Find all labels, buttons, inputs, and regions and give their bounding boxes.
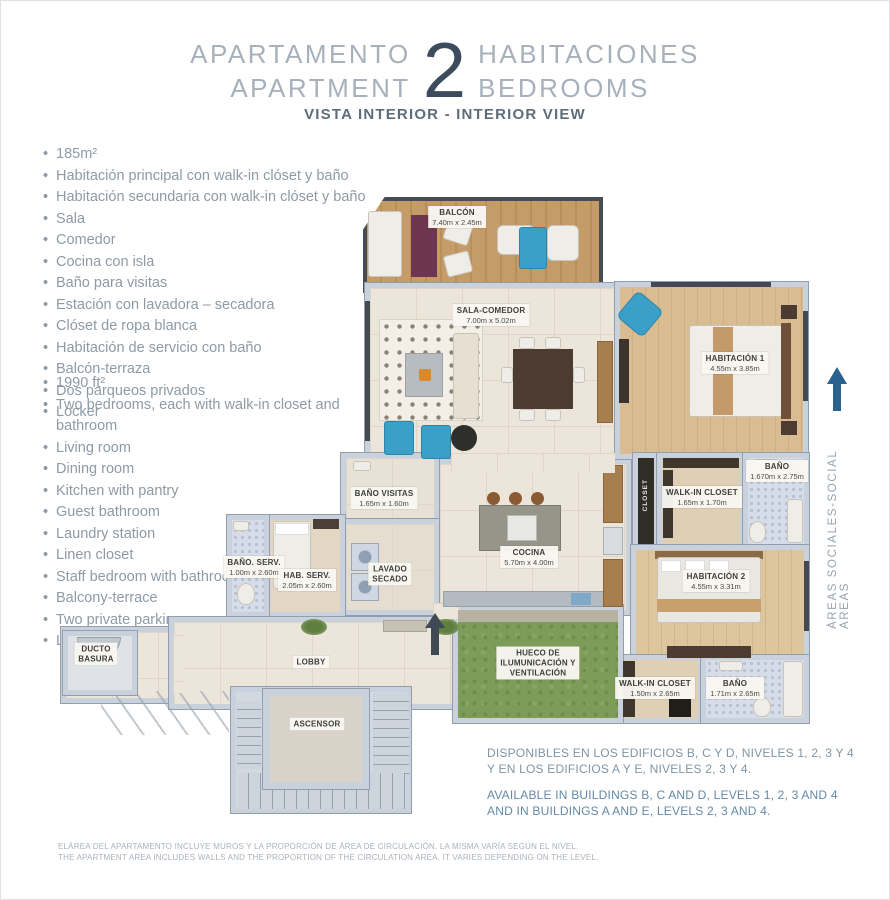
label-lobby: LOBBY: [293, 656, 330, 669]
bedroom2-pillow: [661, 560, 681, 572]
title-es-left: APARTAMENTO: [190, 37, 411, 71]
label-guest-bathroom: BAÑO VISITAS1.65m x 1.60m: [351, 487, 418, 509]
feature-item: Habitación de servicio con baño: [43, 338, 375, 360]
lobby-console: [383, 620, 427, 632]
stairs-right: [373, 693, 409, 779]
nightstand: [781, 305, 797, 319]
balcony-sofa: [368, 211, 402, 277]
label-walkin-closet-2: WALK-IN CLOSET1.50m x 2.65m: [615, 677, 695, 699]
bath2-tub: [783, 661, 803, 717]
availability-text-es: DISPONIBLES EN LOS EDIFICIOS B, C Y D, N…: [487, 745, 879, 777]
staff-bath-toilet: [237, 583, 255, 605]
dining-chair: [519, 337, 535, 349]
feature-item: Baño para visitas: [43, 273, 375, 295]
bath1-toilet: [749, 521, 766, 543]
bar-stool: [487, 492, 500, 505]
title-right-column: HABITACIONES BEDROOMS: [478, 37, 700, 105]
kitchen-cabinet: [603, 559, 623, 607]
bar-stool: [509, 492, 522, 505]
label-living-dining: SALA-COMEDOR7.00m x 5.02m: [453, 304, 530, 326]
label-kitchen: COCINA5.70m x 4.00m: [500, 546, 558, 568]
console-table: [597, 341, 613, 423]
feature-item: Two bedrooms, each with walk-in closet a…: [43, 395, 375, 438]
kitchen-sink: [571, 593, 591, 605]
feature-item: Living room: [43, 438, 375, 460]
balcony-table: [519, 227, 547, 269]
view-subtitle: VISTA INTERIOR - INTERIOR VIEW: [1, 106, 889, 123]
dining-chair: [519, 409, 535, 421]
label-elevator: ASCENSOR: [290, 718, 345, 731]
dining-chair: [573, 367, 585, 383]
stairs-left: [237, 701, 261, 769]
bedroom2-dresser: [667, 646, 751, 658]
feature-item: Clóset de ropa blanca: [43, 316, 375, 338]
dining-chair: [545, 409, 561, 421]
feature-item: Habitación principal con walk-in clóset …: [43, 166, 375, 188]
guest-bath-sink: [353, 461, 371, 471]
title-en-left: APARTMENT: [190, 71, 411, 105]
feature-item: Cocina con isla: [43, 252, 375, 274]
feature-item: Kitchen with pantry: [43, 481, 375, 503]
feature-item: 1990 ft²: [43, 373, 375, 395]
label-bathroom-1: BAÑO1.670m x 2.75m: [746, 460, 808, 482]
label-light-well: HUECO DE ILUMUNICACIÓN Y VENTILACIÓN: [496, 647, 579, 680]
walkin2-locker: [669, 699, 691, 717]
bath2-sink: [719, 661, 743, 671]
lobby-passage-patch: [173, 635, 183, 693]
label-bedroom-2: HABITACIÓN 24.55m x 3.31m: [683, 570, 750, 592]
label-bedroom-1: HABITACIÓN 14.55m x 3.85m: [702, 352, 769, 374]
bath2-toilet: [753, 697, 771, 717]
label-staff-bathroom: BAÑO. SERV.1.00m x 2.60m: [223, 556, 284, 578]
living-armchair: [421, 425, 451, 459]
bedroom1-tv-console: [619, 339, 629, 403]
nightstand: [781, 421, 797, 435]
title-left-column: APARTAMENTO APARTMENT: [190, 37, 411, 105]
refrigerator: [603, 527, 623, 555]
coffee-table-decor: [419, 369, 431, 381]
bar-stool: [531, 492, 544, 505]
disclaimer-text: ELÁREA DEL APARTAMENTO INCLUYE MUROS Y L…: [58, 841, 599, 863]
bedroom2-bed-runner: [657, 599, 761, 612]
label-bathroom-2: BAÑO1.71m x 2.65m: [706, 677, 764, 699]
dining-table: [513, 349, 573, 409]
lobby-plant: [301, 619, 327, 635]
lobby-ramp-hatch: [101, 691, 229, 735]
label-trash-chute: DUCTOBASURA: [74, 643, 117, 666]
floorplan-page: APARTAMENTO APARTMENT 2 HABITACIONES BED…: [0, 0, 890, 900]
staff-closet: [313, 519, 339, 529]
feature-item: Sala: [43, 209, 375, 231]
living-sofa: [453, 333, 479, 419]
window-bedroom1-right: [803, 311, 808, 401]
lightwell-paver: [458, 610, 618, 622]
label-linen-closet: CLOSET: [642, 479, 649, 511]
kitchen-counter: [443, 591, 623, 607]
page-title: APARTAMENTO APARTMENT 2 HABITACIONES BED…: [1, 37, 889, 105]
dining-chair: [545, 337, 561, 349]
title-es-right: HABITACIONES: [478, 37, 700, 71]
bedroom-count: 2: [421, 39, 468, 103]
open-passage-patch: [451, 453, 615, 473]
social-areas-note: ÁREAS SOCIALES-SOCIAL AREAS: [827, 419, 851, 629]
staff-bed-pillow: [275, 523, 309, 535]
living-armchair: [384, 421, 414, 455]
kitchen-stove: [507, 515, 537, 541]
bedroom1-headboard: [781, 323, 791, 419]
label-laundry: LAVADOSECADO: [368, 563, 411, 586]
staff-bath-sink: [233, 521, 249, 531]
feature-item: Comedor: [43, 230, 375, 252]
window-bedroom2-right: [804, 561, 809, 631]
window-living: [365, 301, 370, 441]
label-balcony: BALCÓN7.40m x 2.45m: [428, 206, 486, 228]
window-bedroom1-top: [651, 282, 771, 287]
dining-chair: [501, 367, 513, 383]
bath1-shower: [787, 499, 803, 543]
round-rug: [451, 425, 477, 451]
feature-item: 185m²: [43, 144, 375, 166]
label-walkin-closet-1: WALK-IN CLOSET1.65m x 1.70m: [662, 486, 742, 508]
availability-text-en: AVAILABLE IN BUILDINGS B, C AND D, LEVEL…: [487, 787, 879, 819]
title-en-right: BEDROOMS: [478, 71, 700, 105]
elevator-shaft: [263, 689, 369, 789]
feature-item: Estación con lavadora – secadora: [43, 295, 375, 317]
feature-item: Dining room: [43, 459, 375, 481]
balcony-lounge-chair: [547, 225, 579, 261]
label-staff-bedroom: HAB. SERV.2.05m x 2.60m: [278, 569, 336, 591]
kitchen-pantry: [603, 465, 623, 523]
walkin1-shelf: [663, 458, 739, 468]
feature-item: Habitación secundaria con walk-in clóset…: [43, 187, 375, 209]
